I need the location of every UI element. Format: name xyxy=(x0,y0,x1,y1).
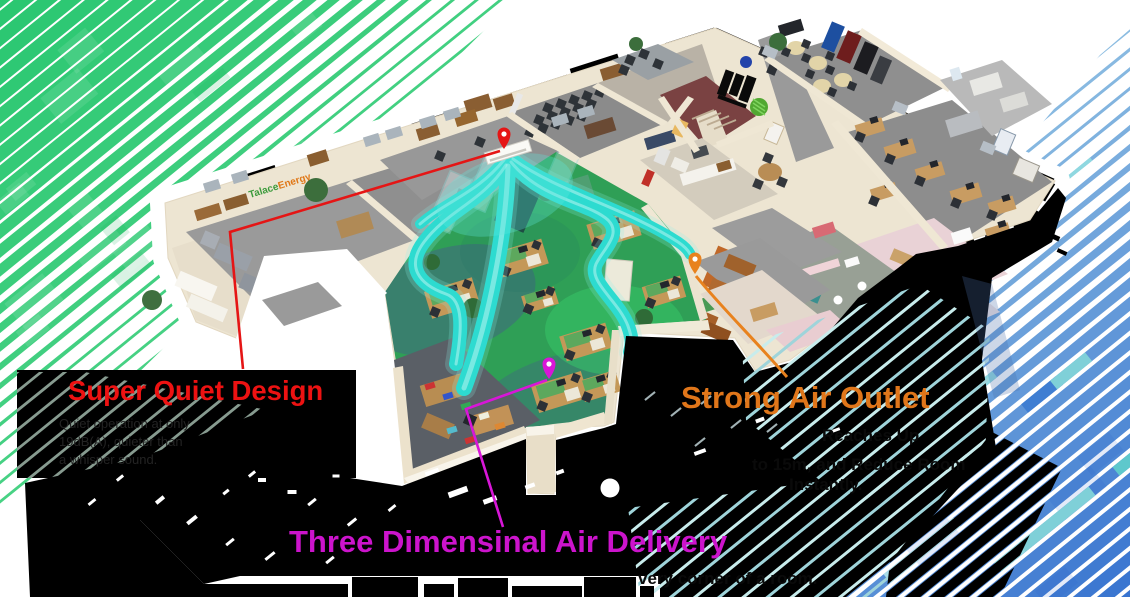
svg-text:Three Dimensinal Air Delivery: Three Dimensinal Air Delivery xyxy=(289,524,728,559)
svg-text:a whisper sound.: a whisper sound. xyxy=(59,452,157,467)
svg-text:Super Quiet Design: Super Quiet Design xyxy=(68,375,323,406)
svg-text:19dB(A), quieter than: 19dB(A), quieter than xyxy=(59,434,183,449)
svg-text:to 15m, and Reduce Room: to 15m, and Reduce Room xyxy=(752,455,965,474)
svg-text:Instantly.: Instantly. xyxy=(789,475,862,494)
svg-text:Strong Air Outlet: Strong Air Outlet xyxy=(681,380,930,415)
svg-text:Reaches Up: Reaches Up xyxy=(822,426,919,445)
svg-text:very corner of a room.: very corner of a room. xyxy=(638,569,818,588)
svg-text:Quiet operation at only: Quiet operation at only xyxy=(59,416,190,431)
